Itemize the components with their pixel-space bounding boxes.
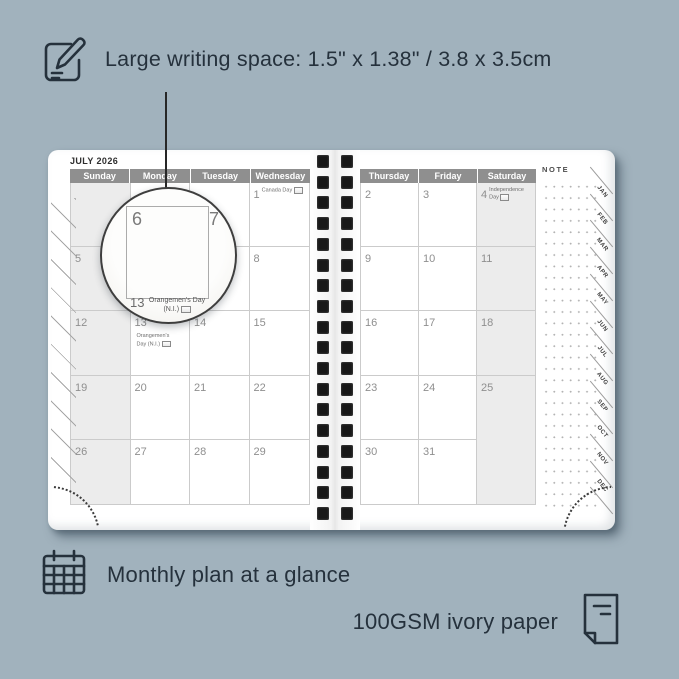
calendar-cell: 4Independence Day (477, 183, 535, 247)
calendar-cell: 12 (71, 311, 131, 375)
date-number: 30 (365, 446, 377, 458)
binding-hole (317, 383, 329, 396)
feature-paper: 100GSM ivory paper (353, 590, 629, 653)
binding-hole (341, 362, 353, 375)
binding-hole (317, 341, 329, 354)
date-number: 9 (365, 253, 371, 265)
month-tabs: JANFEBMARAPRMAYJUNJULAUGSEPOCTNOVDEC (589, 180, 615, 502)
product-image: Large writing space: 1.5" x 1.38" / 3.8 … (0, 0, 679, 679)
date-number: 20 (135, 382, 147, 394)
binding-hole (341, 279, 353, 292)
binding-hole (341, 196, 353, 209)
calendar-cell: 9 (361, 247, 419, 311)
magnifier-circle: 6 7 13 Orangemen's Day (N.I.) (100, 187, 237, 324)
date-number: 2 (365, 189, 371, 201)
month-title: JULY 2026 (70, 156, 118, 166)
paper-icon (573, 590, 629, 653)
binding-hole (317, 300, 329, 313)
date-number: 31 (423, 446, 435, 458)
date-number: 19 (75, 382, 87, 394)
date-number: 11 (481, 253, 492, 265)
magnified-date-7: 7 (209, 209, 219, 230)
binding-hole (341, 466, 353, 479)
date-number: 17 (423, 317, 435, 329)
flag-icon (181, 306, 191, 313)
binding-hole (317, 217, 329, 230)
calendar-cell: 17 (419, 311, 477, 375)
date-number: 8 (254, 253, 260, 265)
calendar-cell: 22 (250, 376, 310, 440)
calendar-cell: 29 (250, 440, 310, 504)
flag-icon (500, 194, 509, 201)
binding-hole (317, 196, 329, 209)
day-header-monday: Monday (130, 169, 189, 183)
calendar-cell: 19 (71, 376, 131, 440)
calendar-cell: 18 (477, 311, 535, 375)
right-day-header-row: ThursdayFridaySaturday (360, 169, 536, 183)
binding-hole (341, 176, 353, 189)
binding-hole (317, 155, 329, 168)
date-number: 22 (254, 382, 266, 394)
magnified-holiday-label: Orangemen's Day (N.I.) (144, 296, 210, 315)
date-number: 16 (365, 317, 377, 329)
date-number: 28 (194, 446, 206, 458)
feature-monthly-plan: Monthly plan at a glance (38, 545, 350, 604)
date-number: 23 (365, 382, 377, 394)
date-number: 26 (75, 446, 87, 458)
binding-hole (317, 466, 329, 479)
binding-hole (317, 445, 329, 458)
binding-hole (341, 155, 353, 168)
right-calendar-grid: 234Independence Day910111617182324253031 (360, 183, 536, 505)
date-number: 14 (194, 317, 206, 329)
holiday-label: Independence Day (489, 187, 531, 202)
calendar-cell: 31 (419, 440, 477, 504)
calendar-cell: 27 (131, 440, 191, 504)
day-header-tuesday: Tuesday (191, 169, 250, 183)
date-number: 27 (135, 446, 147, 458)
magnified-date-13: 13 (130, 295, 144, 310)
binding-hole (341, 341, 353, 354)
calendar-cell: 3 (419, 183, 477, 247)
spiral-binding (310, 150, 360, 530)
magnified-date-6: 6 (132, 209, 142, 230)
date-number: 18 (481, 317, 493, 329)
day-header-saturday: Saturday (478, 169, 536, 183)
date-number: 3 (423, 189, 429, 201)
calendar-grid-icon (38, 545, 90, 604)
binding-hole (317, 176, 329, 189)
binding-hole (317, 424, 329, 437)
perforated-corner-right (551, 483, 611, 527)
binding-hole (317, 362, 329, 375)
holiday-label: Orangemen's Day (N.I.) (137, 333, 179, 348)
calendar-cell: 1Canada Day (250, 183, 310, 247)
binding-hole (317, 238, 329, 251)
calendar-cell: 30 (361, 440, 419, 504)
binding-hole (317, 507, 329, 520)
left-day-header-row: SundayMondayTuesdayWednesday (70, 169, 310, 183)
calendar-cell: 10 (419, 247, 477, 311)
feature-monthly-plan-text: Monthly plan at a glance (107, 562, 350, 588)
binding-hole (341, 445, 353, 458)
calendar-cell: 24 (419, 376, 477, 440)
feature-writing-space-text: Large writing space: 1.5" x 1.38" / 3.8 … (105, 47, 552, 72)
flag-icon (162, 341, 171, 348)
flag-icon (294, 187, 303, 194)
calendar-cell: 11 (477, 247, 535, 311)
binding-hole (317, 279, 329, 292)
feature-writing-space: Large writing space: 1.5" x 1.38" / 3.8 … (40, 33, 552, 86)
calendar-cell: 14 (190, 311, 250, 375)
pencil-note-icon (40, 33, 90, 86)
calendar-cell: 8 (250, 247, 310, 311)
date-number: 24 (423, 382, 435, 394)
magnifier-pointer-line (165, 92, 167, 189)
date-number: 15 (254, 317, 266, 329)
binding-hole (341, 321, 353, 334)
calendar-cell (477, 440, 535, 504)
binding-hole (341, 300, 353, 313)
date-number: 21 (194, 382, 206, 394)
binding-hole (317, 486, 329, 499)
calendar-cell: 21 (190, 376, 250, 440)
date-number: 12 (75, 317, 87, 329)
binding-hole (317, 403, 329, 416)
feature-paper-text: 100GSM ivory paper (353, 609, 558, 635)
binding-hole (317, 321, 329, 334)
calendar-cell: 25 (477, 376, 535, 440)
binding-hole (341, 217, 353, 230)
calendar-cell: 28 (190, 440, 250, 504)
day-header-wednesday: Wednesday (251, 169, 310, 183)
binding-hole (341, 259, 353, 272)
date-number: 10 (423, 253, 435, 265)
note-label: NOTE (542, 165, 569, 174)
binding-hole (341, 507, 353, 520)
day-header-thursday: Thursday (360, 169, 418, 183)
date-number: 1 (254, 189, 260, 201)
day-header-sunday: Sunday (70, 169, 129, 183)
day-header-friday: Friday (419, 169, 477, 183)
calendar-cell: 16 (361, 311, 419, 375)
binding-hole (341, 486, 353, 499)
holiday-label: Canada Day (262, 187, 303, 195)
calendar-cell: 2 (361, 183, 419, 247)
binding-hole (317, 259, 329, 272)
date-number: 25 (481, 382, 493, 394)
date-number: 29 (254, 446, 266, 458)
calendar-cell: 23 (361, 376, 419, 440)
page-edge-hatching (51, 198, 76, 485)
calendar-cell: 15 (250, 311, 310, 375)
perforated-corner-left (52, 483, 112, 527)
calendar-cell: 20 (131, 376, 191, 440)
binding-hole (341, 424, 353, 437)
date-number: 4 (481, 189, 487, 201)
binding-hole (341, 383, 353, 396)
binding-hole (341, 403, 353, 416)
binding-hole (341, 238, 353, 251)
